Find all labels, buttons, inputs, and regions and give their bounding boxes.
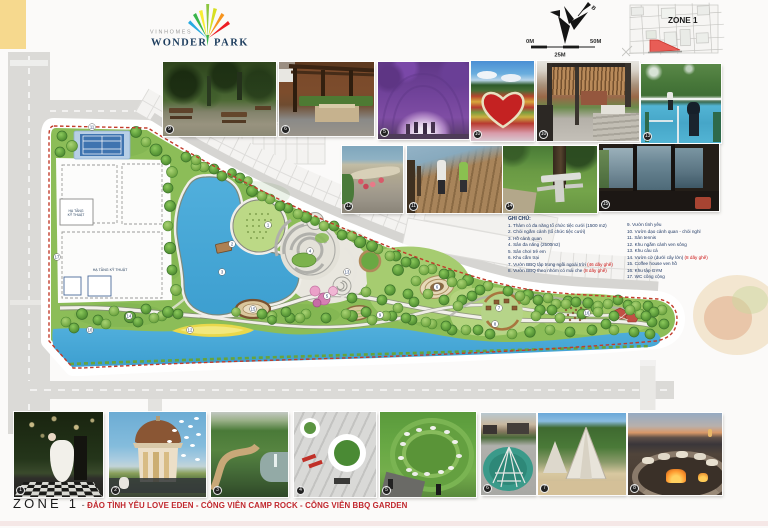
svg-text:0M: 0M [526, 39, 534, 45]
svg-text:12: 12 [188, 328, 193, 333]
svg-text:13: 13 [345, 270, 350, 275]
svg-text:15: 15 [251, 307, 256, 312]
svg-text:11: 11 [90, 125, 95, 130]
svg-text:ZONE 1: ZONE 1 [668, 16, 698, 25]
svg-text:HẠ TẦNG KỸ THUẬT: HẠ TẦNG KỸ THUẬT [93, 267, 128, 272]
svg-text:B: B [590, 5, 597, 12]
svg-text:10: 10 [88, 328, 93, 333]
svg-text:14: 14 [127, 314, 132, 319]
svg-text:KỸ THUẬT: KỸ THUẬT [68, 212, 85, 217]
svg-text:PARK: PARK [214, 38, 249, 49]
svg-text:50M: 50M [590, 39, 601, 45]
svg-text:WONDER: WONDER [151, 38, 207, 49]
svg-text:16: 16 [585, 311, 590, 316]
svg-text:VINHOMES: VINHOMES [150, 30, 192, 36]
svg-text:17: 17 [55, 255, 60, 260]
svg-text:25M: 25M [554, 53, 565, 59]
